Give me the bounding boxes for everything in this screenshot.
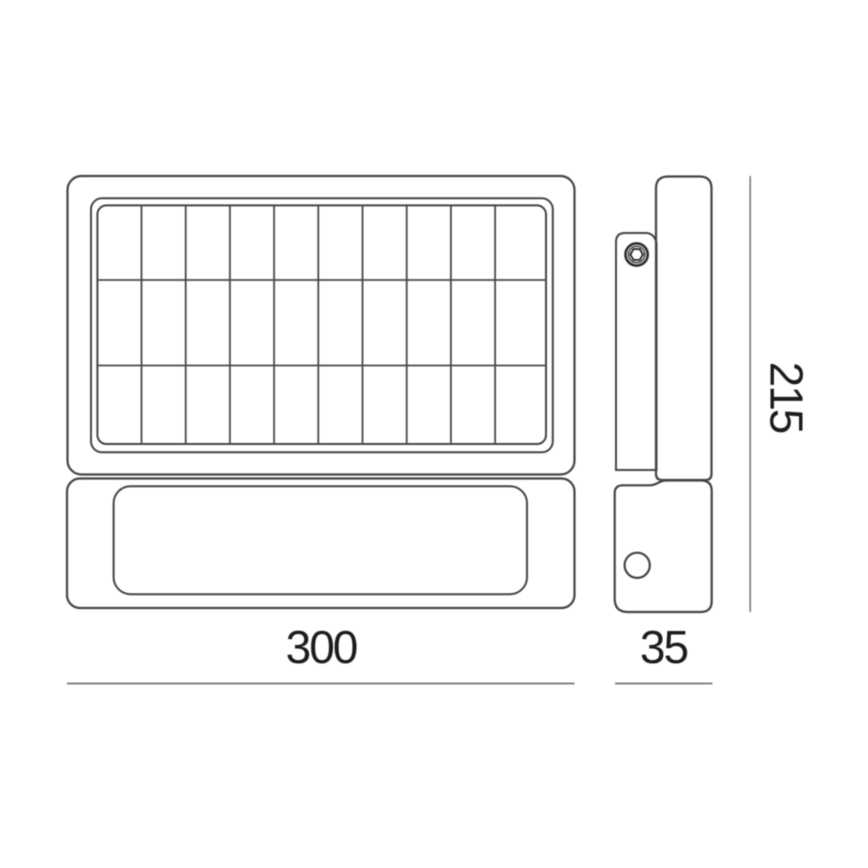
svg-text:35: 35 [640,621,688,673]
svg-text:300: 300 [286,621,357,673]
svg-text:215: 215 [761,362,813,433]
